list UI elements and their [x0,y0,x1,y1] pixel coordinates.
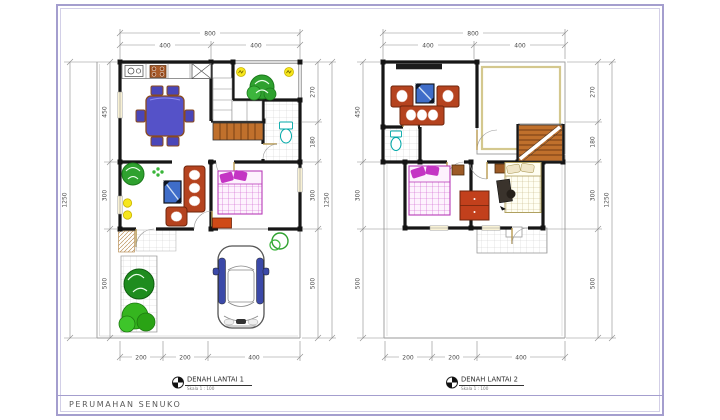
dim-label: 400 [159,42,171,49]
dim-label: 300 [590,190,597,202]
bedroom-right [495,163,541,213]
dim-label: 450 [102,106,109,118]
dining-table [136,86,194,146]
dim-label: 200 [448,354,460,361]
dim-label: 180 [310,136,317,148]
dim-label: 300 [102,190,109,202]
dresser [213,218,232,228]
bedroom-left [409,165,464,215]
dim-label: 270 [590,86,597,98]
dim-label: 200 [135,354,147,361]
floor-plan-1: 800 400 400 450 300 500 1250 270 180 300… [62,29,337,391]
tv-icon [416,84,434,103]
living-room [122,163,205,226]
car [213,246,269,328]
sofa [400,106,444,125]
dim-label: 500 [310,278,317,290]
nightstand [495,164,505,173]
dim-label: 400 [248,354,260,361]
title-bubble-icon [447,377,458,388]
toilet-icon [391,131,402,151]
project-label: PERUMAHAN SENUKO [69,400,181,409]
dim-label: 200 [402,354,414,361]
sink-icon [125,66,143,77]
lamp-icon [123,199,131,219]
floorplan-canvas: 800 400 400 450 300 500 1250 270 180 300… [0,0,720,420]
bed [409,165,450,215]
armchair [391,86,413,107]
fridge-icon [192,64,211,79]
dim-label: 450 [355,106,362,118]
stove-icon [150,66,166,78]
terrace-tiles [136,230,176,251]
dim-label: 400 [422,42,434,49]
rear-garden [237,68,294,101]
stairs [213,123,263,140]
title-bubble-icon [173,377,184,388]
dim-label: 1250 [604,192,611,207]
stairs [519,125,563,161]
sofa [184,166,205,212]
plan2-title: DENAH LANTAI 2 [461,376,518,384]
shrub-icon [270,233,288,250]
doormat [119,231,135,252]
tv-console [396,64,442,70]
dim-label: 500 [355,278,362,290]
dim-label: 200 [179,354,191,361]
dim-label: 400 [514,42,526,49]
toilet-icon [280,122,293,143]
dim-label: 300 [310,190,317,202]
armchair [166,207,187,226]
flower-icon [152,167,163,176]
tree-icon [124,269,154,299]
dim-label: 1250 [62,192,69,207]
kitchen-counter [122,64,211,79]
title-block: PERUMAHAN SENUKO [58,396,662,410]
tv-icon [164,181,181,203]
dim-label: 1250 [324,192,331,207]
bedroom [213,170,289,250]
dim-label: 400 [250,42,262,49]
nightstand [452,165,464,175]
armchair [437,86,459,107]
plan2-scale: Skala 1 : 100 [461,386,489,391]
bathroom [391,131,402,151]
plan1-title-block: DENAH LANTAI 1 Skala 1 : 100 [173,376,253,392]
dim-label: 300 [355,190,362,202]
dim-label: 270 [310,86,317,98]
dim-label: 500 [590,278,597,290]
family-room [391,64,459,125]
floor-plan-2: 800 400 400 450 300 500 270 180 300 500 … [355,29,617,391]
drawing-sheet: 800 400 400 450 300 500 1250 270 180 300… [0,0,720,420]
wardrobe [460,191,489,220]
plant-icon [247,75,276,100]
lamp-icon [237,68,246,77]
plant-icon [122,163,144,185]
plan2-title-block: DENAH LANTAI 2 Skala 1 : 100 [447,376,525,392]
dim-label: 400 [515,354,527,361]
plan1-title: DENAH LANTAI 1 [187,376,244,384]
lamp-icon [285,68,294,77]
dim-label: 500 [102,278,109,290]
dim-label: 180 [590,136,597,148]
dim-label: 800 [204,30,216,37]
dim-label: 800 [467,30,479,37]
bathroom [280,122,293,143]
plan1-scale: Skala 1 : 100 [187,386,215,391]
bed [218,170,262,214]
